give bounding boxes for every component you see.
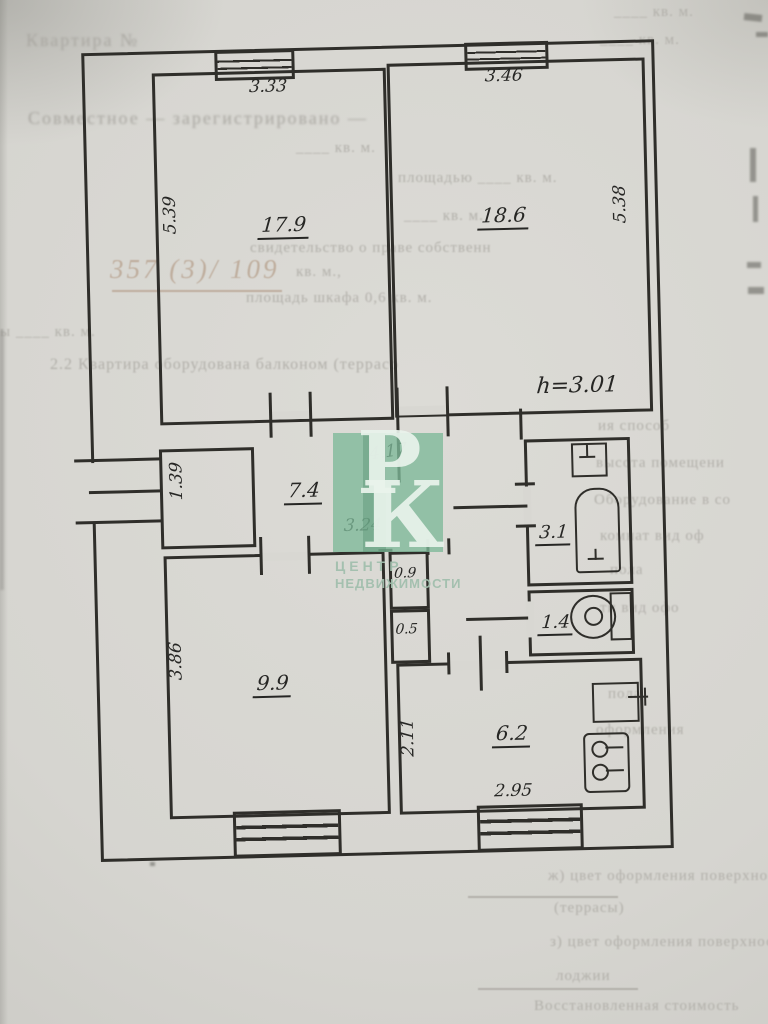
room-area-label: 3.1: [535, 521, 572, 546]
watermark-caption: НЕДВИЖИМОСТИ: [335, 576, 461, 591]
door-opening: [260, 552, 308, 561]
room-area-label: 0.5: [395, 621, 419, 638]
ghost-text: лоджии: [556, 968, 611, 985]
door-tick: [515, 482, 535, 485]
bathtub-icon: [574, 487, 621, 573]
scan-artifact: [744, 13, 763, 22]
bathtub-drain-icon: [588, 558, 604, 560]
ghost-text: ы ____ кв. м.: [0, 324, 96, 341]
dim-label: 5.38: [610, 181, 631, 227]
ghost-text: ____ кв. м.: [614, 4, 694, 21]
door-tick: [447, 652, 450, 674]
room-area-label: 18.6: [477, 202, 530, 230]
dim-label: 3.33: [248, 76, 287, 97]
door-opening: [526, 601, 535, 637]
door-tick: [447, 538, 450, 554]
scanned-floorplan-page: ____ кв. м. ____ кв. м. Квартира № Совме…: [0, 0, 768, 1024]
room-area-label: 1.4: [537, 611, 574, 636]
ghost-underline: [478, 988, 638, 990]
room-17-9-outline: [152, 68, 395, 426]
door-opening: [270, 411, 310, 420]
room-area-label: 17.9: [257, 212, 310, 240]
scan-artifact: [748, 287, 764, 294]
scan-artifact: [753, 196, 758, 222]
ceiling-height-label: h=3.01: [535, 372, 619, 399]
scan-artifact: [150, 862, 155, 866]
watermark-caption: ЦЕНТР: [335, 558, 403, 574]
scan-artifact: [750, 148, 756, 182]
ghost-text: з) цвет оформления поверхности: [550, 934, 768, 951]
ghost-underline: [468, 896, 618, 898]
kitchen-faucet-icon: [644, 688, 646, 706]
kitchen-sink-icon: [592, 682, 640, 723]
toilet-tank-icon: [610, 592, 633, 641]
ghost-text: (террасы): [554, 900, 625, 917]
sink-faucet-icon: [579, 456, 595, 458]
stove-icon: [583, 732, 630, 793]
scan-artifact: [747, 262, 761, 268]
dim-label: 1.39: [166, 458, 187, 504]
dim-label: 3.46: [484, 65, 523, 86]
door-opening: [449, 660, 506, 670]
dim-label: 2.11: [397, 715, 418, 761]
ghost-text: ж) цвет оформления поверхности балкона: [548, 868, 768, 885]
sink-icon: [571, 443, 608, 478]
window-symbol: [233, 809, 342, 858]
dim-label: 2.95: [494, 780, 533, 801]
door-tick: [505, 651, 508, 673]
dim-label: 5.39: [160, 192, 181, 238]
watermark-logo: Р К: [333, 433, 443, 552]
scan-artifact: [0, 330, 4, 590]
room-18-6-outline: [387, 57, 654, 417]
stove-detail: [606, 769, 624, 771]
ghost-text: Восстановленная стоимость: [534, 998, 739, 1015]
room-area-label: 7.4: [284, 477, 324, 505]
watermark-letter-k: К: [361, 469, 445, 561]
room-area-label: 6.2: [492, 720, 532, 748]
door-tick: [516, 524, 536, 527]
window-symbol: [477, 803, 584, 852]
scan-artifact: [756, 32, 768, 37]
dim-label: 3.86: [166, 638, 187, 684]
room-area-label: 9.9: [253, 670, 293, 698]
